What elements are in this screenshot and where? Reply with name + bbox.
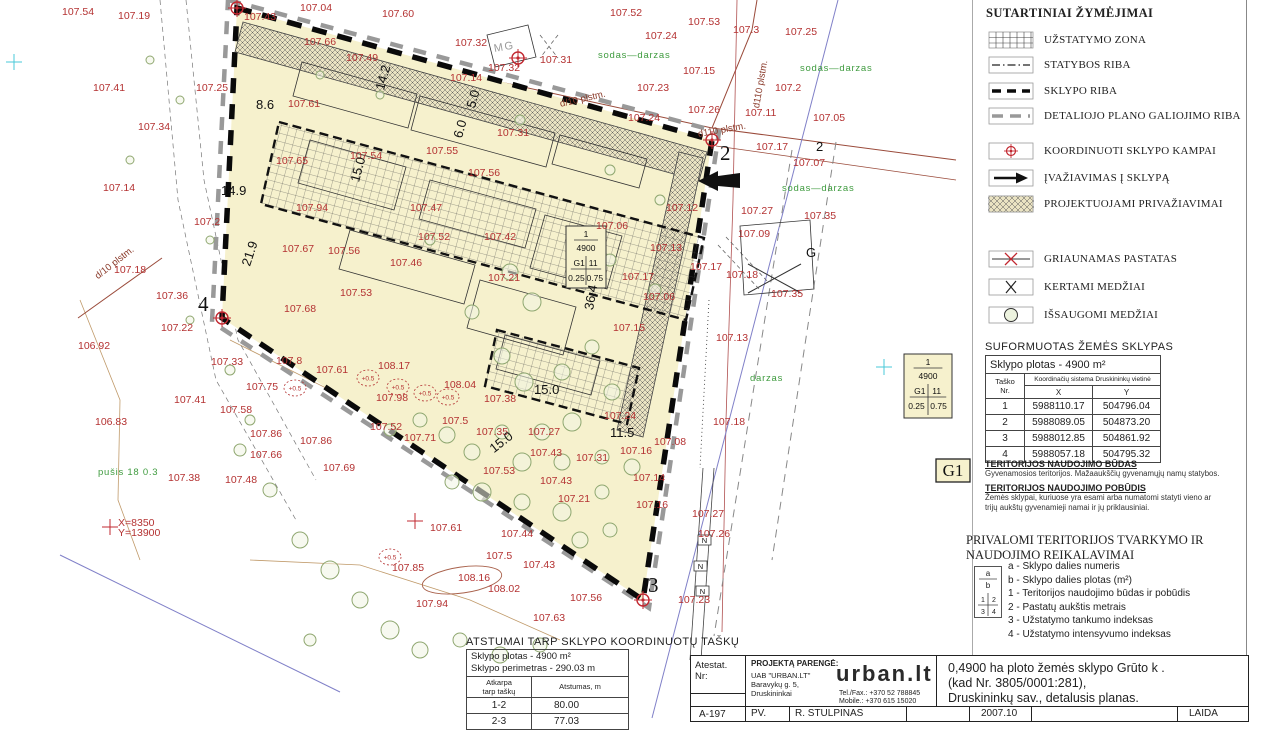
svg-text:4900: 4900 xyxy=(577,243,596,253)
elevation-label: 107.04 xyxy=(300,2,332,14)
elevation-label: 107.06 xyxy=(643,291,675,303)
elevation-label: 107.36 xyxy=(156,290,188,302)
legend-symbol-grayDash-icon xyxy=(988,107,1034,125)
preserved-tree-icon xyxy=(453,633,467,647)
preserved-tree-icon xyxy=(316,71,324,79)
elevation-label: 107.3 xyxy=(733,24,759,36)
svg-text:4: 4 xyxy=(992,609,996,616)
attestation-number: A-197 xyxy=(699,709,726,720)
area-name-label: sodas—darzas xyxy=(800,63,872,74)
elevation-label: 106.92 xyxy=(78,340,110,352)
elevation-label: 107.61 xyxy=(288,98,320,110)
preserved-tree-icon xyxy=(413,413,427,427)
elevation-label: 108.17 xyxy=(378,360,410,372)
elevation-label: 107.86 xyxy=(300,435,332,447)
author-name: R. STULPINAS xyxy=(795,708,863,719)
elevation-label: 107.25 xyxy=(196,82,228,94)
elevation-label: 106.83 xyxy=(95,416,127,428)
distance-row: 1-280.00 xyxy=(467,697,629,713)
svg-text:G1: G1 xyxy=(943,461,964,480)
requirement-item: a - Sklypo dalies numeris xyxy=(1008,560,1190,574)
requirement-item: 1 - Teritorijos naudojimo būdas ir pobūd… xyxy=(1008,587,1190,601)
preserved-tree-icon xyxy=(473,483,491,501)
elevation-label: 107.43 xyxy=(530,447,562,459)
elevation-label: 107.52 xyxy=(370,421,402,433)
dimension-label: 2 xyxy=(816,139,823,154)
g1-zone-label: G1 xyxy=(936,459,970,482)
preserved-tree-icon xyxy=(605,165,615,175)
preserved-tree-icon xyxy=(515,373,533,391)
g1-pobudis-title: TERITORIJOS NAUDOJIMO POBŪDIS xyxy=(985,483,1222,493)
preserved-tree-icon xyxy=(553,503,571,521)
elevation-label: 107.23 xyxy=(637,82,669,94)
svg-text:a: a xyxy=(986,569,991,578)
elevation-label: 107.41 xyxy=(174,394,206,406)
elevation-label: 107.8 xyxy=(276,355,302,367)
elevation-label: 107.07 xyxy=(793,157,825,169)
preserved-tree-icon xyxy=(515,115,525,125)
elevation-label: 107.71 xyxy=(404,432,436,444)
elevation-label: 107.35 xyxy=(804,210,836,222)
legend-item-label: UŽSTATYMO ZONA xyxy=(1044,34,1146,46)
urban-lt-logo: urban.lt xyxy=(836,661,933,687)
parcel-part-symbol: ab1234 xyxy=(974,566,1002,618)
phone-fax: Tel./Fax.: +370 52 788845 xyxy=(839,690,920,697)
elevation-label: 107.27 xyxy=(528,426,560,438)
legend-item-label: STATYBOS RIBA xyxy=(1044,59,1131,71)
elevation-label: 107.38 xyxy=(168,472,200,484)
preserved-tree-icon xyxy=(412,642,428,658)
elevation-label: 107.94 xyxy=(416,598,448,610)
distances-table: Sklypo plotas - 4900 m²Sklypo perimetras… xyxy=(466,649,629,730)
plan-sheet: +0.5+0.5+0.5+0.5+0.5+0.514900G1110.250.7… xyxy=(0,0,1280,720)
elevation-label: 107.13 xyxy=(716,332,748,344)
coordinate-row: 35988012.85504861.92 xyxy=(986,431,1161,447)
spot-height-label: +0.5 xyxy=(289,386,302,393)
preserved-tree-icon xyxy=(554,364,570,380)
svg-text:1: 1 xyxy=(981,597,985,604)
elevation-label: 107.5 xyxy=(486,550,512,562)
legend-symbol-circle-icon xyxy=(988,306,1034,324)
svg-text:0.25: 0.25 xyxy=(908,401,925,411)
elevation-label: 107.31 xyxy=(540,54,572,66)
requirement-item: 4 - Užstatymo intensyvumo indeksas xyxy=(1008,628,1190,642)
phone-mobile: Mobile.: +370 615 15020 xyxy=(839,698,916,705)
title-block: Atestat. Nr: PROJEKTĄ PARENGĖ: UAB "URBA… xyxy=(690,655,1249,722)
preserved-tree-icon xyxy=(655,195,665,205)
laida-label: LAIDA xyxy=(1189,708,1218,719)
elevation-label: 107.34 xyxy=(138,121,170,133)
elevation-label: 107.31 xyxy=(497,127,529,139)
legend-item-label: PROJEKTUOJAMI PRIVAŽIAVIMAI xyxy=(1044,198,1223,210)
dimension-label: 8.6 xyxy=(256,97,274,112)
requirement-item: b - Sklypo dalies plotas (m²) xyxy=(1008,574,1190,588)
elevation-label: 107.67 xyxy=(282,243,314,255)
preserved-tree-icon xyxy=(439,427,455,443)
elevation-label: 107.75 xyxy=(246,381,278,393)
svg-text:b: b xyxy=(986,581,991,590)
preserved-tree-icon xyxy=(563,413,581,431)
parenge-label: PROJEKTĄ PARENGĖ: xyxy=(751,659,838,668)
legend-symbol-boldDash-icon xyxy=(988,82,1034,100)
elevation-label: 107.68 xyxy=(284,303,316,315)
distance-row: 2-377.03 xyxy=(467,713,629,729)
preserved-tree-icon xyxy=(292,532,308,548)
elevation-label: 107.63 xyxy=(533,612,565,624)
elevation-label: 107.94 xyxy=(296,202,328,214)
elevation-label: Y=13900 xyxy=(118,527,160,539)
parcel-area-row: Sklypo plotas - 4900 m² xyxy=(986,356,1161,374)
elevation-label: 107.14 xyxy=(103,182,135,194)
preserved-tree-icon xyxy=(464,444,480,460)
preserved-tree-icon xyxy=(146,56,154,64)
elevation-label: 107.43 xyxy=(523,559,555,571)
coord-system-header: Koordinačių sistema Druskininkų vietinė xyxy=(1025,374,1161,386)
elevation-label: 107.24 xyxy=(628,112,660,124)
elevation-label: 108.04 xyxy=(444,379,476,391)
atestat-label: Atestat. xyxy=(695,660,727,671)
elevation-label: 107.46 xyxy=(390,257,422,269)
corner-number-label: 2 xyxy=(720,141,731,165)
legend-item-label: IŠSAUGOMI MEDŽIAI xyxy=(1044,309,1158,321)
coordinate-row: 15988110.17504796.04 xyxy=(986,399,1161,415)
project-title-line1: 0,4900 ha ploto žemės sklypo Grūto k . xyxy=(948,661,1165,675)
firm-city: Druskininkai xyxy=(751,689,792,698)
firm-name: UAB "URBAN.LT" xyxy=(751,671,810,680)
elevation-label: 107.06 xyxy=(596,220,628,232)
area-name-label: darzas xyxy=(750,373,783,384)
svg-text:3: 3 xyxy=(981,609,985,616)
x-header: X xyxy=(1025,386,1093,399)
svg-text:0.25: 0.25 xyxy=(568,273,585,283)
svg-text:11: 11 xyxy=(589,258,598,268)
project-title-line2: (kad Nr. 3805/0001:281), xyxy=(948,676,1086,690)
preserved-tree-icon xyxy=(523,293,541,311)
preserved-tree-icon xyxy=(304,634,316,646)
elevation-label: 107.21 xyxy=(488,272,520,284)
spot-height-label: +0.5 xyxy=(362,376,375,383)
g1-pobudis-text: Žemės sklypai, kuriuose yra esami arba n… xyxy=(985,493,1222,513)
area-name-label: sodas—darzas xyxy=(598,50,670,61)
legend-item-label: GRIAUNAMAS PASTATAS xyxy=(1044,253,1177,265)
parcel-summary-cell: Sklypo plotas - 4900 m²Sklypo perimetras… xyxy=(467,650,629,677)
legend-item-label: KOORDINUOTI SKLYPO KAMPAI xyxy=(1044,145,1216,157)
elevation-label: 107.52 xyxy=(610,7,642,19)
distances-table-title: ATSTUMAI TARP SKLYPO KOORDINUOTŲ TAŠKŲ xyxy=(466,636,739,648)
preserved-tree-icon xyxy=(513,453,531,471)
elevation-label: 107.26 xyxy=(688,104,720,116)
elevation-label: 107.41 xyxy=(93,82,125,94)
legend-item-label: ĮVAŽIAVIMAS Į SKLYPĄ xyxy=(1044,172,1170,184)
elevation-label: 107.58 xyxy=(220,404,252,416)
elevation-label: 107.15 xyxy=(613,322,645,334)
elevation-label: 107.56 xyxy=(468,167,500,179)
atestat-nr-label: Nr: xyxy=(695,671,708,682)
elevation-label: 107.5 xyxy=(442,415,468,427)
elevation-label: 107.16 xyxy=(620,445,652,457)
dimension-label: 14.9 xyxy=(221,183,246,198)
point-nr-header: Taško Nr. xyxy=(986,374,1025,399)
elevation-label: 107.66 xyxy=(250,449,282,461)
legend-symbol-arrow-icon xyxy=(988,169,1034,187)
elevation-label: 108.16 xyxy=(458,572,490,584)
elevation-label: 107.85 xyxy=(392,562,424,574)
preserved-tree-icon xyxy=(245,415,255,425)
requirement-item: 3 - Užstatymo tankumo indeksas xyxy=(1008,614,1190,628)
legend-item-label: SKLYPO RIBA xyxy=(1044,85,1117,97)
preserved-tree-icon xyxy=(445,475,459,489)
preserved-tree-icon xyxy=(381,621,399,639)
g1-budas-title: TERITORIJOS NAUDOJIMO BŪDAS xyxy=(985,459,1222,469)
elevation-label: 107.17 xyxy=(690,261,722,273)
preserved-tree-icon xyxy=(595,485,609,499)
elevation-label: 107.2 xyxy=(775,82,801,94)
preserved-tree-icon xyxy=(176,96,184,104)
elevation-label: 107.42 xyxy=(484,231,516,243)
elevation-label: 107.16 xyxy=(636,499,668,511)
elevation-label: 107.21 xyxy=(558,493,590,505)
elevation-label: 107.17 xyxy=(756,141,788,153)
parcel-info-box: 14900G1110.250.75 xyxy=(566,226,606,288)
elevation-label: 107.09 xyxy=(738,228,770,240)
svg-text:0.75: 0.75 xyxy=(930,401,947,411)
corner-number-label: 3 xyxy=(648,573,659,597)
elevation-label: 107.47 xyxy=(410,202,442,214)
preserved-tree-icon xyxy=(206,236,214,244)
elevation-label: 107.23 xyxy=(678,594,710,606)
elevation-label: 107.43 xyxy=(244,11,276,23)
elevation-label: 107.18 xyxy=(726,269,758,281)
elevation-label: 107.65 xyxy=(276,155,308,167)
preserved-tree-icon xyxy=(263,483,277,497)
elevation-label: 107.61 xyxy=(430,522,462,534)
preserved-tree-icon xyxy=(234,444,246,456)
preserved-tree-icon xyxy=(352,592,368,608)
elevation-label: 107.44 xyxy=(501,528,533,540)
g1-budas-text: Gyvenamosios teritorijos. Mažaaukščių gy… xyxy=(985,469,1222,479)
elevation-label: 107.38 xyxy=(484,393,516,405)
elevation-label: 107.53 xyxy=(340,287,372,299)
elevation-label: 107.52 xyxy=(418,231,450,243)
elevation-label: 107.60 xyxy=(382,8,414,20)
elevation-label: 107.24 xyxy=(604,410,636,422)
elevation-label: 107.98 xyxy=(376,392,408,404)
preserved-tree-icon xyxy=(494,348,510,364)
elevation-label: 107.43 xyxy=(540,475,572,487)
legend: UŽSTATYMO ZONASTATYBOS RIBASKLYPO RIBADE… xyxy=(988,0,1268,340)
requirement-item: 2 - Pastatų aukštis metrais xyxy=(1008,601,1190,615)
area-name-label: pušis 18 0.3 xyxy=(98,467,158,478)
elevation-label: 107.31 xyxy=(576,452,608,464)
preserved-tree-icon xyxy=(321,561,339,579)
segment-header: Atkarpa tarp taškų xyxy=(467,676,532,697)
elevation-label: 107.53 xyxy=(688,16,720,28)
elevation-label: 107.61 xyxy=(316,364,348,376)
elevation-label: 107.69 xyxy=(323,462,355,474)
parcel-table-title: SUFORMUOTAS ŽEMĖS SKLYPAS xyxy=(985,341,1173,353)
legend-symbol-demolish-icon xyxy=(988,250,1034,268)
spot-height-label: +0.5 xyxy=(392,385,405,392)
pole-n-box: N xyxy=(694,561,707,571)
elevation-label: 107.24 xyxy=(645,30,677,42)
legend-symbol-grid-icon xyxy=(988,31,1034,49)
elevation-label: 107.33 xyxy=(211,356,243,368)
distance-header: Atstumas, m xyxy=(532,676,629,697)
coordinate-row: 25988089.05504873.20 xyxy=(986,415,1161,431)
svg-text:G1: G1 xyxy=(914,386,926,396)
svg-text:2: 2 xyxy=(992,597,996,604)
elevation-label: 107.27 xyxy=(692,508,724,520)
svg-text:1: 1 xyxy=(584,229,589,239)
preserved-tree-icon xyxy=(572,532,588,548)
elevation-label: 107.22 xyxy=(161,322,193,334)
g1-section: TERITORIJOS NAUDOJIMO BŪDAS Gyvenamosios… xyxy=(985,459,1222,513)
spot-height-label: +0.5 xyxy=(419,391,432,398)
site-plan-map: +0.5+0.5+0.5+0.5+0.5+0.514900G1110.250.7… xyxy=(0,0,980,720)
elevation-label: 107.17 xyxy=(622,271,654,283)
elevation-label: 107.35 xyxy=(771,288,803,300)
legend-symbol-cutX-icon xyxy=(988,278,1034,296)
elevation-label: 107.86 xyxy=(250,428,282,440)
elevation-label: 107.27 xyxy=(741,205,773,217)
preserved-tree-icon xyxy=(604,384,620,400)
elevation-label: 107.66 xyxy=(304,36,336,48)
elevation-label: 107.48 xyxy=(225,474,257,486)
elevation-label: 107.13 xyxy=(650,242,682,254)
spot-height-label: +0.5 xyxy=(442,395,455,402)
elevation-label: 107.49 xyxy=(346,52,378,64)
legend-item-label: KERTAMI MEDŽIAI xyxy=(1044,281,1145,293)
elevation-label: 107.26 xyxy=(698,528,730,540)
date: 2007.10 xyxy=(981,708,1017,719)
y-header: Y xyxy=(1093,386,1161,399)
elevation-label: 107.08 xyxy=(654,436,686,448)
preserved-tree-icon xyxy=(126,156,134,164)
preserved-tree-icon xyxy=(603,523,617,537)
parcel-coordinates-table: Sklypo plotas - 4900 m²Taško Nr.Koordina… xyxy=(985,355,1161,463)
legend-symbol-hatch-icon xyxy=(988,195,1034,213)
elevation-label: 107.14 xyxy=(450,72,482,84)
preserved-tree-icon xyxy=(514,494,530,510)
legend-symbol-target-icon xyxy=(988,142,1034,160)
elevation-label: 107.19 xyxy=(118,10,150,22)
requirements-title: PRIVALOMI TERITORIJOS TVARKYMO IR NAUDOJ… xyxy=(966,533,1203,563)
parcel-info-box: 14900G1110.250.75 xyxy=(904,354,952,418)
elevation-label: 107.18 xyxy=(713,416,745,428)
firm-street: Baravykų g. 5, xyxy=(751,680,799,689)
svg-text:0.75: 0.75 xyxy=(587,273,604,283)
elevation-label: 107.12 xyxy=(666,202,698,214)
preserved-tree-icon xyxy=(465,305,479,319)
elevation-label: 107.32 xyxy=(455,37,487,49)
elevation-label: 107.53 xyxy=(483,465,515,477)
svg-text:G1: G1 xyxy=(574,258,586,268)
elevation-label: 107.15 xyxy=(683,65,715,77)
legend-symbol-dashdot-icon xyxy=(988,56,1034,74)
area-name-label: sodas—darzas xyxy=(782,183,854,194)
preserved-tree-icon xyxy=(376,91,384,99)
elevation-label: 108.02 xyxy=(488,583,520,595)
elevation-label: 107.54 xyxy=(62,6,94,18)
project-title-line3: Druskininkų sav., detalusis planas. xyxy=(948,691,1139,705)
elevation-label: 107.2 xyxy=(194,216,220,228)
legend-item-label: DETALIOJO PLANO GALIOJIMO RIBA xyxy=(1044,110,1241,122)
elevation-label: 107.55 xyxy=(426,145,458,157)
svg-text:4900: 4900 xyxy=(919,371,938,381)
dimension-label: 15.0 xyxy=(534,382,559,397)
corner-number-label: 4 xyxy=(198,292,209,316)
preserved-tree-icon xyxy=(585,340,599,354)
spot-height-label: +0.5 xyxy=(384,555,397,562)
elevation-label: 107.56 xyxy=(570,592,602,604)
elevation-label: 107.32 xyxy=(488,62,520,74)
elevation-label: 107.25 xyxy=(785,26,817,38)
elevation-label: 107.56 xyxy=(328,245,360,257)
elevation-label: 107.14 xyxy=(633,472,665,484)
requirements-list: a - Sklypo dalies numerisb - Sklypo dali… xyxy=(1008,560,1190,641)
elevation-label: 107.05 xyxy=(813,112,845,124)
pv-label: PV. xyxy=(751,708,766,719)
dimension-label: 11.5 xyxy=(610,425,634,440)
dimension-label: G xyxy=(806,245,816,260)
svg-text:11: 11 xyxy=(932,386,941,396)
svg-text:1: 1 xyxy=(926,357,931,367)
svg-text:N: N xyxy=(698,562,703,571)
